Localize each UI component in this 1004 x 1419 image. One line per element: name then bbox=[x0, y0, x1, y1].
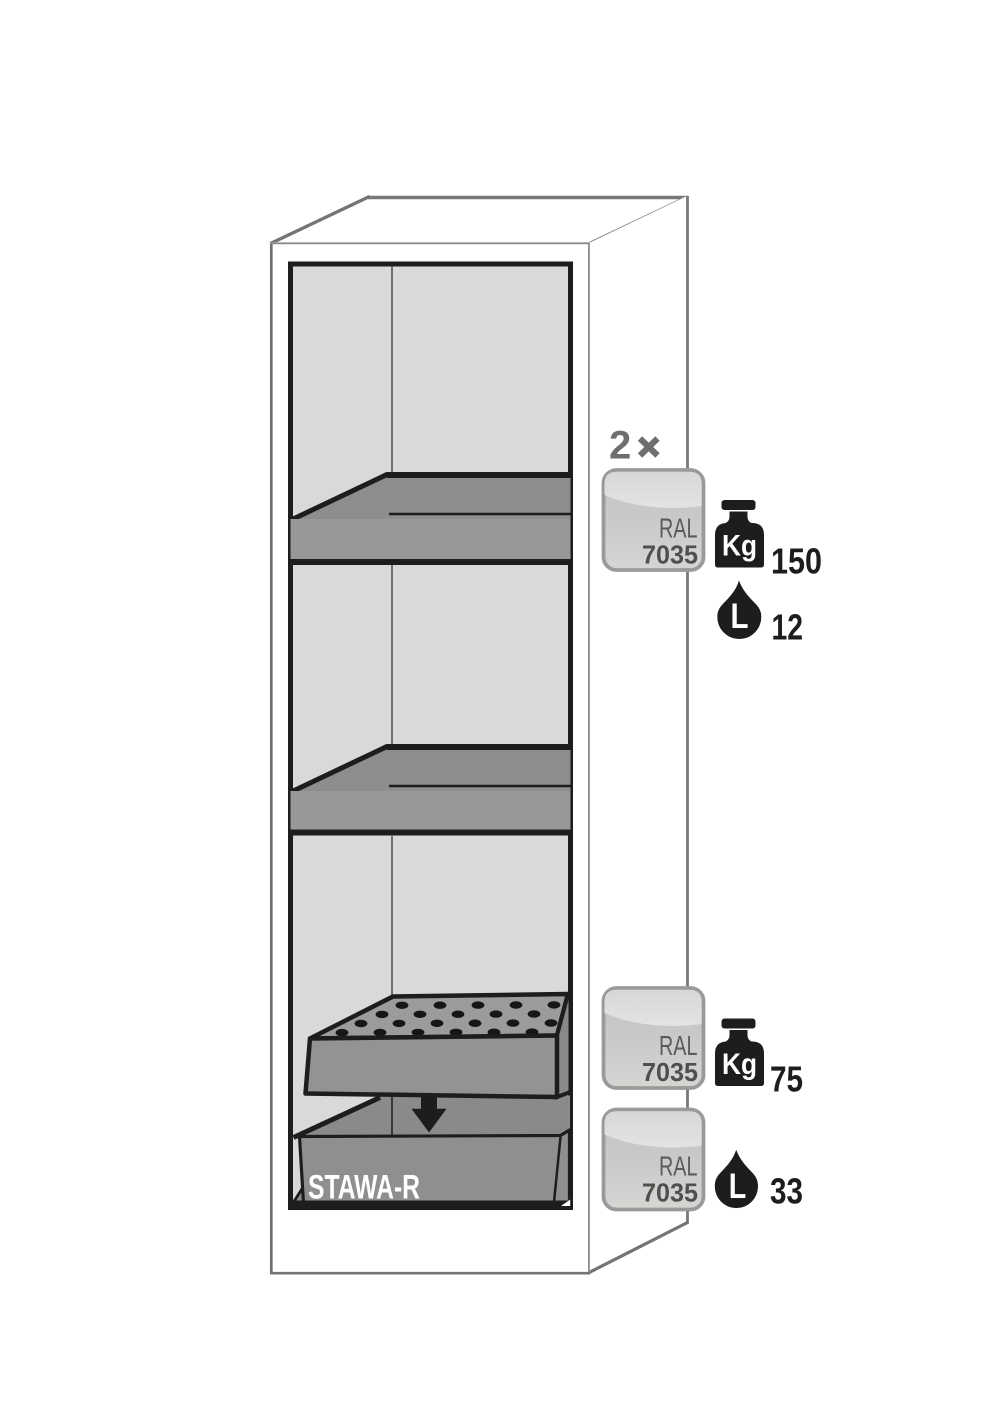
svg-text:33: 33 bbox=[770, 1171, 803, 1212]
svg-text:Kg: Kg bbox=[722, 1048, 757, 1081]
svg-text:150: 150 bbox=[771, 541, 822, 582]
svg-text:7035: 7035 bbox=[642, 1178, 698, 1208]
svg-text:L: L bbox=[729, 1167, 747, 1206]
svg-text:7035: 7035 bbox=[642, 1057, 698, 1087]
svg-text:12: 12 bbox=[772, 607, 804, 648]
svg-text:L: L bbox=[731, 597, 749, 636]
svg-text:75: 75 bbox=[770, 1059, 803, 1100]
svg-text:STAWA-R: STAWA-R bbox=[308, 1169, 420, 1207]
svg-text:7035: 7035 bbox=[642, 540, 698, 570]
svg-text:Kg: Kg bbox=[722, 530, 757, 563]
svg-text:2: 2 bbox=[609, 424, 631, 468]
